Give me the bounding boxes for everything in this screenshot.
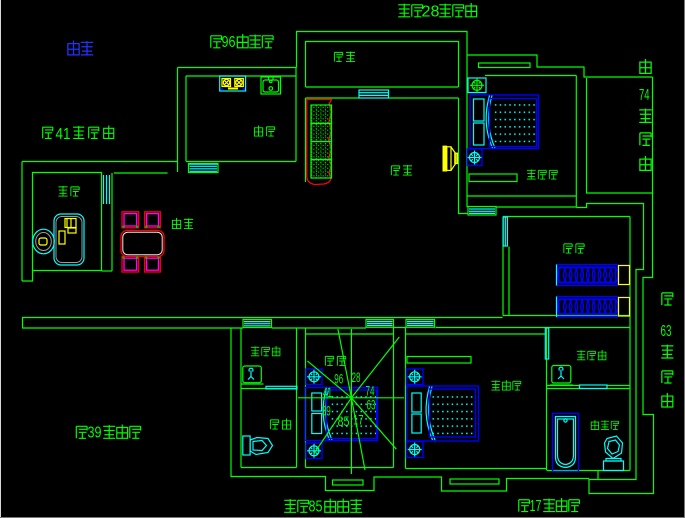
svg-text:41: 41	[323, 385, 332, 400]
svg-text:96: 96	[222, 34, 236, 51]
svg-text:63: 63	[661, 323, 672, 340]
svg-text:39: 39	[88, 425, 102, 442]
svg-text:17: 17	[530, 498, 542, 515]
svg-text:85: 85	[309, 499, 323, 516]
svg-text:28: 28	[422, 4, 440, 21]
svg-text:74: 74	[366, 384, 375, 399]
svg-text:96: 96	[334, 372, 343, 387]
svg-text:41: 41	[56, 126, 71, 143]
svg-text:74: 74	[639, 87, 650, 104]
svg-text:39: 39	[322, 404, 331, 419]
svg-text:17: 17	[353, 413, 364, 428]
svg-text:63: 63	[367, 398, 376, 413]
svg-text:85: 85	[338, 414, 350, 429]
svg-text:28: 28	[352, 370, 361, 385]
